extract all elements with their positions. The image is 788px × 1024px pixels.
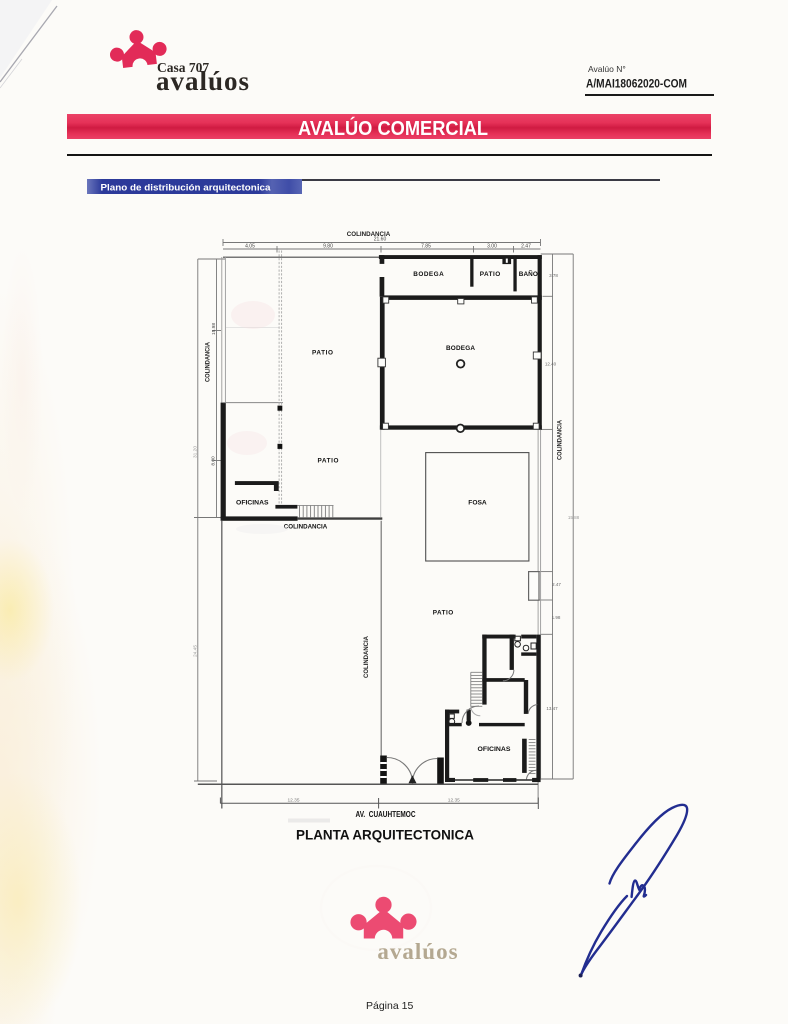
svg-text:avalúos: avalúos [377, 939, 458, 964]
